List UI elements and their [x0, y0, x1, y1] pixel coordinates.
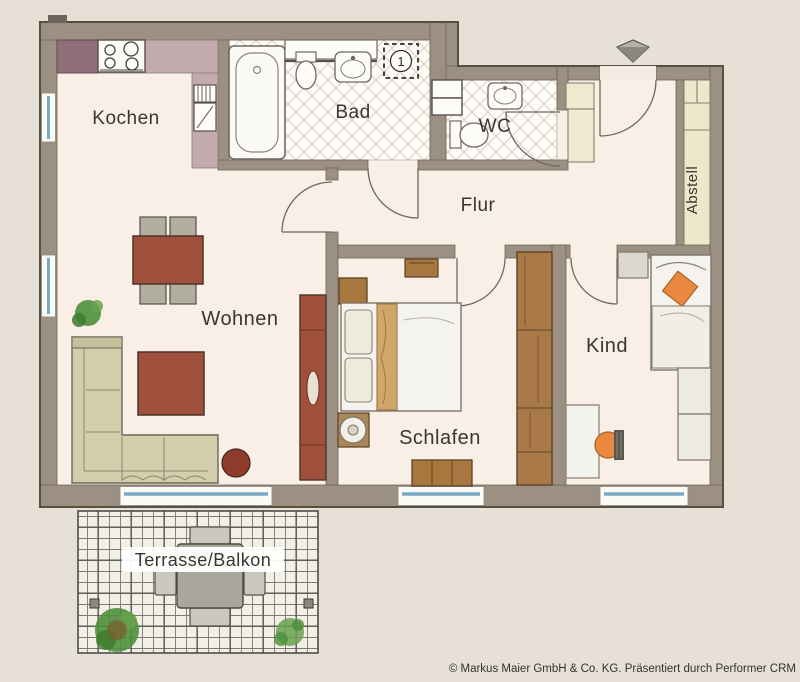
terrace-plant-left [95, 608, 139, 652]
wall-flur-top-a [218, 160, 368, 170]
dishrack-icon [194, 85, 216, 102]
kitchen-fridge [57, 40, 98, 73]
terrace: Terrasse/Balkon [78, 511, 318, 653]
railing-post-right [304, 599, 313, 608]
sideboard [300, 295, 326, 480]
kind-desk [566, 405, 599, 478]
pouf [222, 449, 250, 477]
hall-cabinet-top [566, 83, 594, 109]
nightstand [339, 278, 367, 304]
wall-kochen-bad [218, 40, 229, 168]
wall-schlafen-kind [552, 245, 566, 485]
sink-bad-icon [335, 52, 371, 82]
wardrobe-schlafen [517, 252, 552, 485]
duct-box-bottom [432, 98, 462, 115]
dining-table [133, 236, 203, 284]
terrace-chair-bottom [190, 608, 230, 626]
coffee-table [138, 352, 204, 415]
floor-abstell [684, 80, 710, 245]
room-label-abstell: Abstell [684, 166, 701, 215]
window-schlafen [398, 487, 484, 506]
window-kind [600, 487, 688, 506]
wall-top-right-a [443, 66, 600, 80]
duct-box-top [432, 80, 462, 98]
room-label-wc: WC [479, 116, 512, 137]
wall-wohnen-schlafen [326, 232, 338, 485]
window-wohnen-left [42, 255, 56, 317]
wall-right [710, 66, 723, 507]
wall-wohnen-flur-a [326, 168, 338, 180]
wall-notch [48, 15, 67, 23]
tv-board [405, 259, 438, 277]
kitchen-sink-icon [194, 103, 216, 131]
terrace-chair-top [190, 527, 230, 544]
dresser-bottom [412, 460, 472, 486]
kind-bed [651, 255, 711, 370]
room-label-wohnen: Wohnen [201, 308, 278, 330]
toilet-bad-icon [296, 52, 316, 89]
copyright-line: © Markus Maier GmbH & Co. KG. Präsentier… [449, 663, 796, 675]
wall-abstell-left [676, 80, 684, 245]
bathtub-icon [229, 46, 285, 159]
room-label-terrasse: Terrasse/Balkon [135, 550, 272, 570]
stove-icon [98, 40, 145, 72]
wall-top-left [40, 22, 458, 40]
room-label-bad: Bad [335, 102, 370, 123]
room-label-kochen: Kochen [92, 108, 159, 129]
round-stool [338, 413, 369, 447]
kind-cabinet-b [678, 414, 711, 460]
entrance-number-label: 1 [397, 54, 404, 69]
room-label-kind: Kind [586, 335, 628, 357]
double-bed [341, 303, 461, 411]
kind-shelf-top [618, 252, 648, 278]
room-label-flur: Flur [461, 195, 496, 216]
room-label-schlafen: Schlafen [399, 427, 481, 449]
wall-flur-bottom-a [338, 245, 455, 258]
sink-wc-icon [488, 83, 522, 109]
window-kochen-left [42, 93, 56, 142]
railing-post-left [90, 599, 99, 608]
floorplan-drawing: Terrasse/Balkon [0, 0, 800, 682]
hall-wardrobe [568, 109, 594, 162]
wall-flur-top-b [418, 160, 568, 170]
floorplan-page: Terrasse/Balkon [0, 0, 800, 682]
window-terrace-door [120, 487, 272, 506]
kind-cabinet-a [678, 368, 711, 414]
